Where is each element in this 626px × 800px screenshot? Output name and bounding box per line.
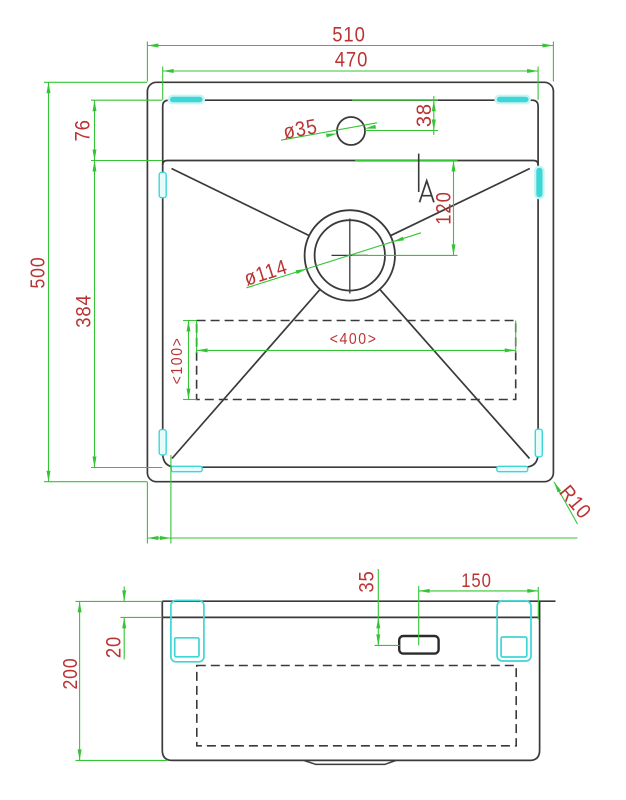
svg-text:R10: R10 — [554, 481, 595, 524]
svg-text:120: 120 — [432, 191, 455, 224]
svg-text:384: 384 — [72, 294, 95, 327]
svg-text:500: 500 — [26, 257, 48, 289]
svg-text:470: 470 — [335, 48, 368, 71]
svg-text:20: 20 — [102, 636, 125, 658]
svg-text:ø35: ø35 — [281, 115, 319, 144]
svg-text:200: 200 — [59, 658, 81, 690]
svg-text:150: 150 — [461, 570, 492, 591]
svg-text:38: 38 — [413, 103, 437, 127]
svg-text:510: 510 — [332, 24, 365, 47]
svg-text:<400>: <400> — [330, 330, 378, 348]
svg-text:35: 35 — [355, 570, 378, 592]
svg-text:<100>: <100> — [168, 337, 186, 385]
svg-text:76: 76 — [71, 119, 94, 141]
svg-text:ø114: ø114 — [241, 255, 290, 291]
